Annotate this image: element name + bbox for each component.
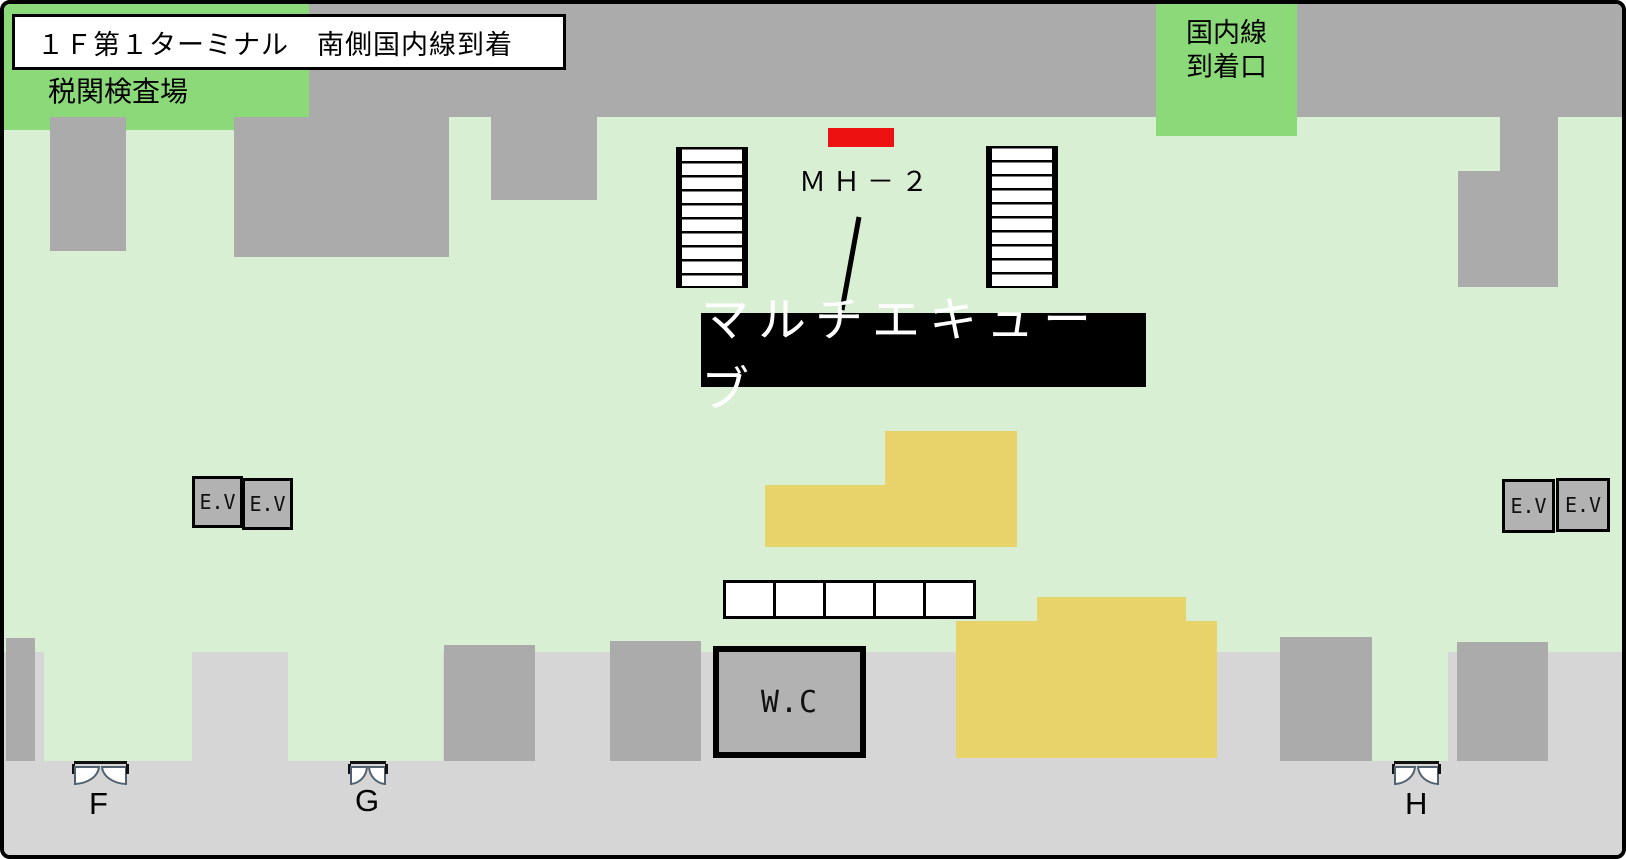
pillar-block	[50, 117, 126, 251]
customs-area-label: 税関検査場	[48, 70, 188, 110]
elevator-box: E.V	[1556, 478, 1610, 532]
multi-ecube-label-text: マルチエキューブ	[701, 280, 1146, 420]
exit-area-g	[288, 652, 443, 761]
elevator-label: E.V	[1510, 494, 1546, 518]
arrival-gate-line2: 到着口	[1186, 50, 1267, 84]
pillar-block	[6, 638, 35, 761]
yellow-zone-lower	[956, 621, 1217, 758]
door-leaf-icon	[1394, 766, 1416, 785]
door-leaf-icon	[101, 766, 127, 785]
pillar-block	[1458, 171, 1558, 287]
mh2-marker	[828, 128, 894, 147]
exit-label-g: G	[355, 783, 379, 819]
pillar-block	[1457, 642, 1548, 761]
white-box-row	[723, 580, 976, 619]
door-leaf-icon	[74, 766, 100, 785]
wc-box: W.C	[713, 646, 866, 758]
pillar-block	[1280, 637, 1372, 761]
white-box-cell	[926, 583, 973, 616]
exit-area-f	[44, 652, 192, 761]
mh2-code: ＭＨ－２	[784, 160, 950, 199]
floor-map: 税関検査場 国内線 到着口 １Ｆ第１ターミナル 南側国内線到着 ＭＨ－２ マルチ…	[0, 0, 1626, 859]
exit-label-f: F	[89, 786, 108, 822]
stairs-left-icon	[676, 147, 748, 288]
yellow-zone-upper-step	[765, 485, 885, 547]
white-box-cell	[726, 583, 773, 616]
page-title: １Ｆ第１ターミナル 南側国内線到着	[12, 14, 566, 70]
wc-label: W.C	[761, 685, 818, 720]
pillar-block	[444, 645, 535, 761]
pillar-block	[491, 117, 597, 200]
exit-label-h: H	[1405, 786, 1427, 822]
page-title-text: １Ｆ第１ターミナル 南側国内線到着	[37, 23, 513, 62]
elevator-label: E.V	[199, 490, 235, 514]
exit-door-f	[74, 761, 127, 786]
elevator-box: E.V	[1502, 479, 1555, 533]
door-leaf-icon	[1417, 766, 1439, 785]
elevator-box: E.V	[242, 478, 293, 530]
yellow-zone-lower-step	[1037, 597, 1186, 623]
stairs-right-icon	[986, 146, 1058, 288]
elevator-box: E.V	[192, 476, 243, 528]
elevator-label: E.V	[249, 492, 285, 516]
pillar-block	[1500, 117, 1558, 173]
exit-door-h	[1394, 761, 1439, 786]
arrival-gate-line1: 国内線	[1186, 16, 1267, 50]
multi-ecube-label: マルチエキューブ	[701, 313, 1146, 387]
arrival-gate-box: 国内線 到着口	[1156, 4, 1297, 136]
yellow-zone-upper	[885, 431, 1017, 547]
white-box-cell	[826, 583, 873, 616]
white-box-cell	[776, 583, 823, 616]
pillar-block	[234, 117, 449, 257]
exit-area-h	[1372, 652, 1448, 761]
elevator-label: E.V	[1565, 493, 1601, 517]
white-box-cell	[876, 583, 923, 616]
pillar-block	[610, 641, 701, 761]
